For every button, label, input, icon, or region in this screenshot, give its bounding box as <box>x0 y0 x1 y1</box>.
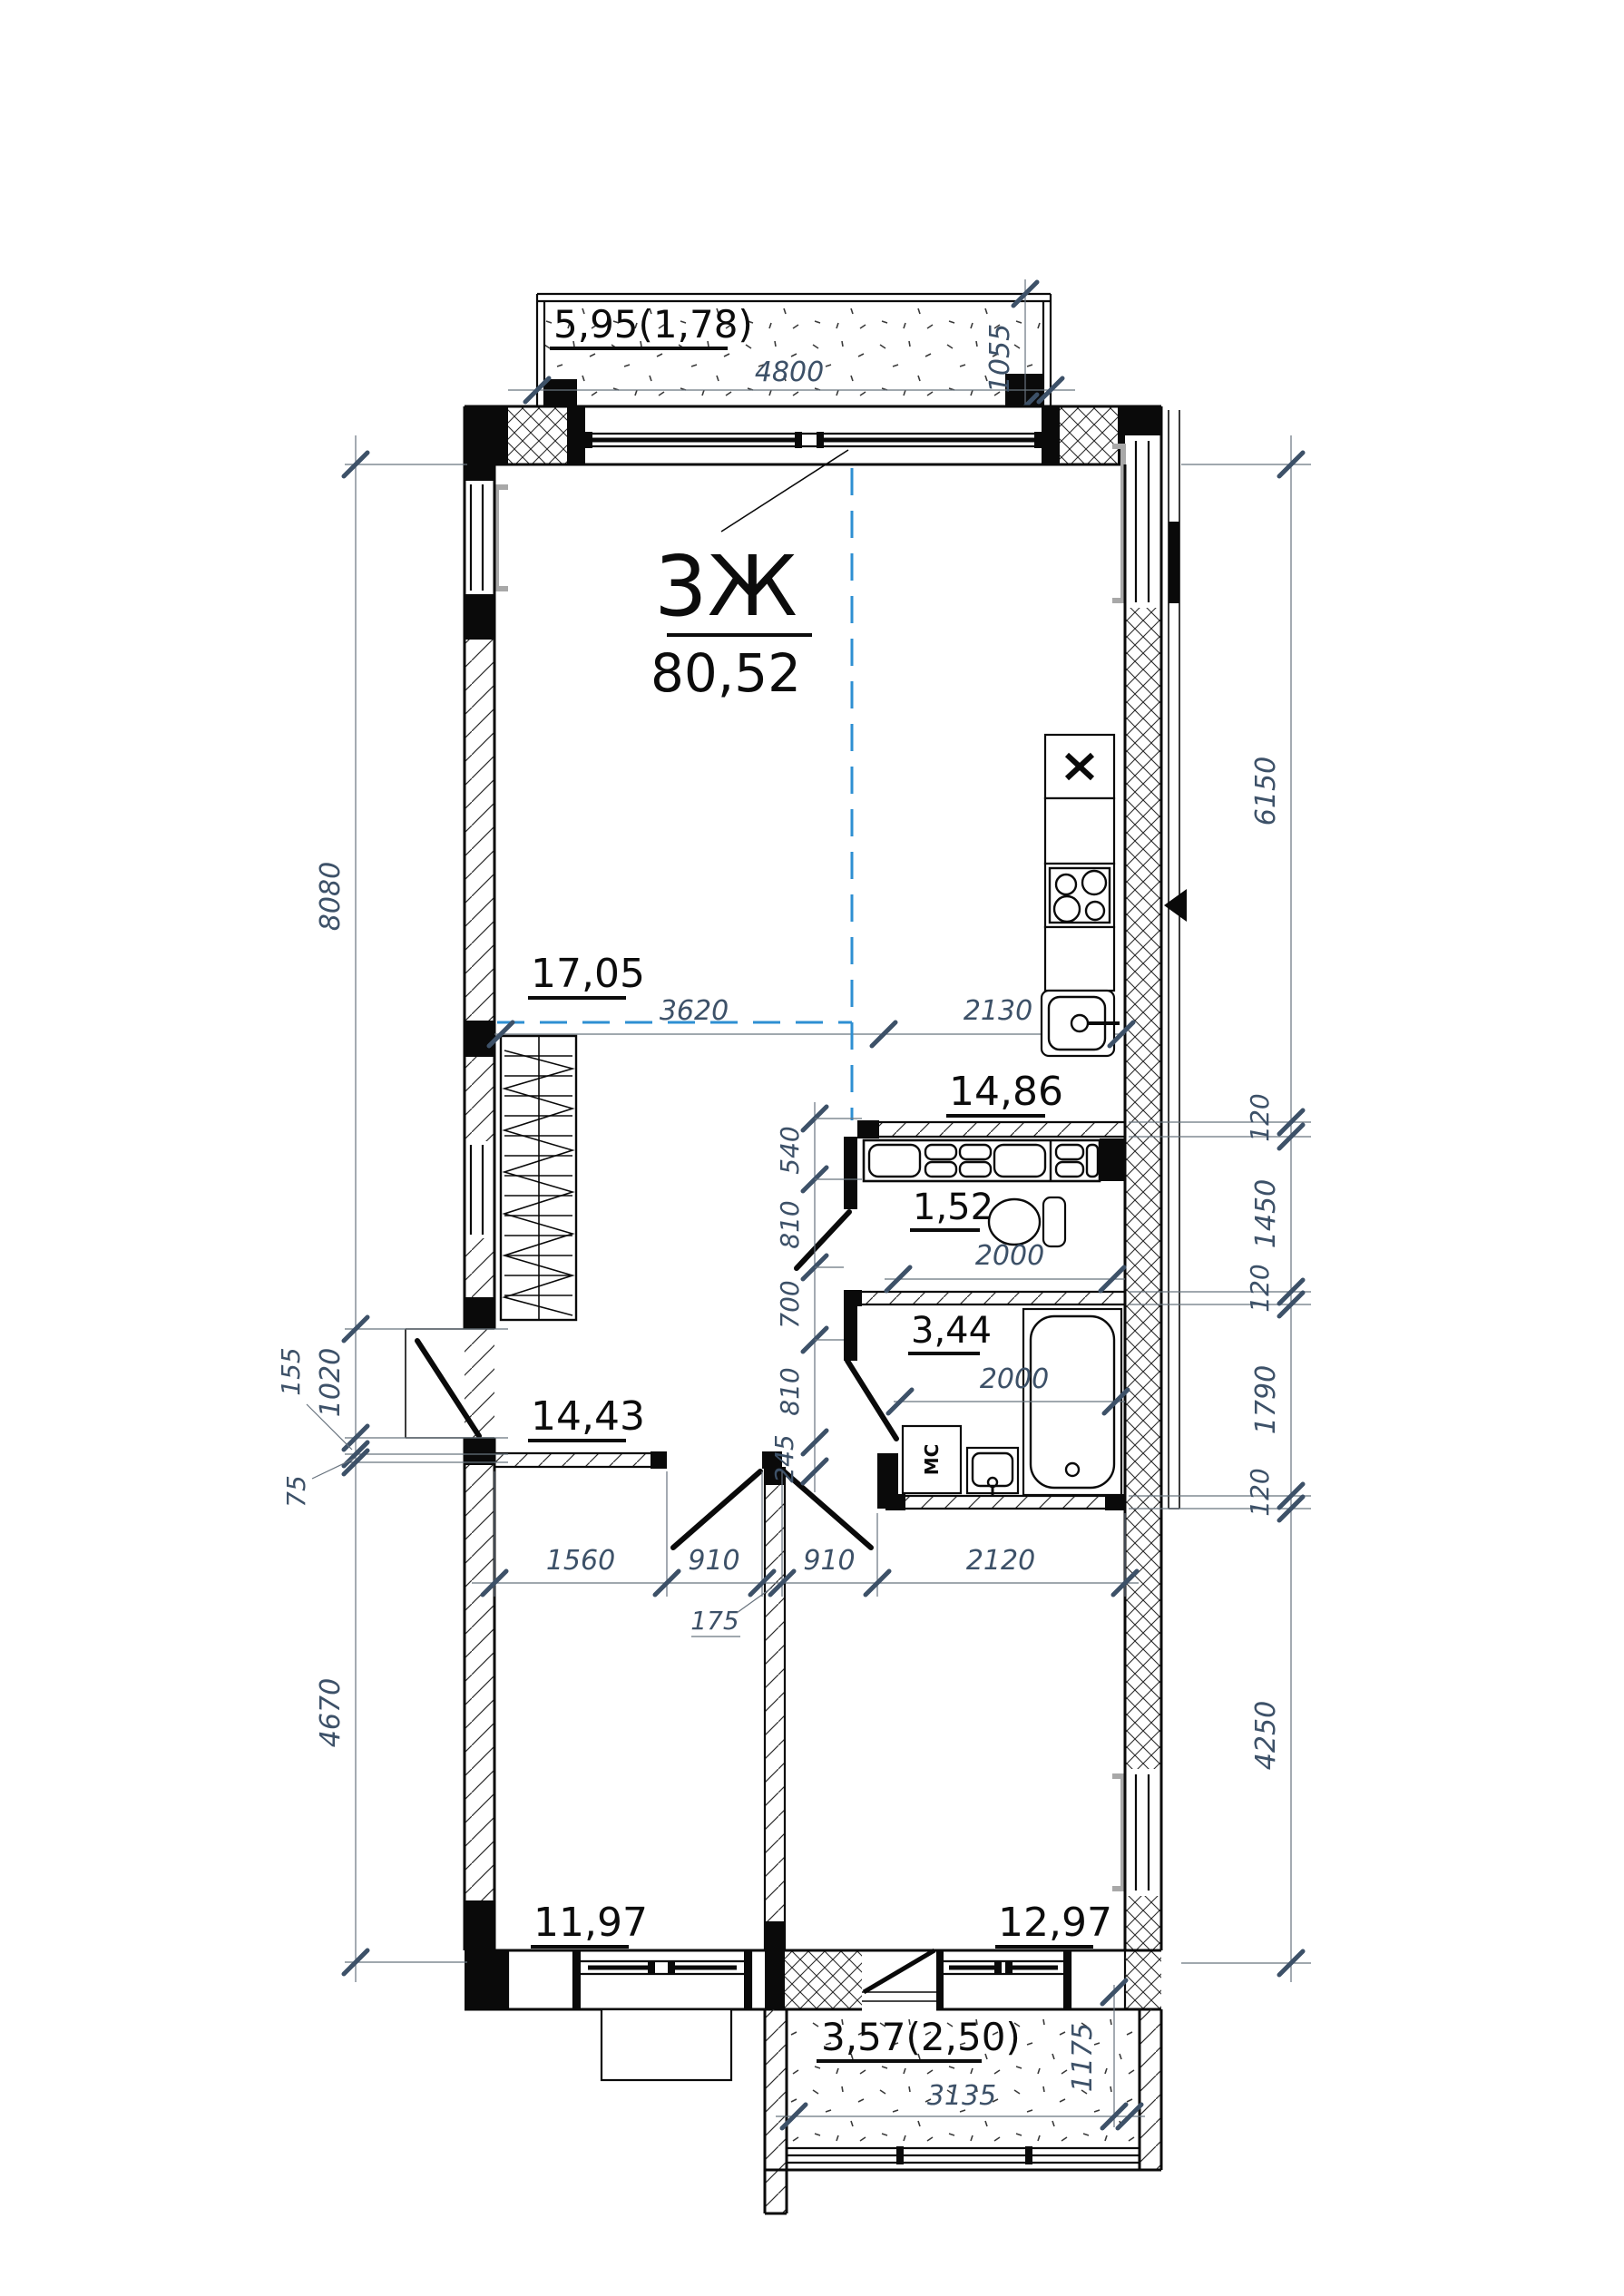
facade-marker <box>1164 889 1187 922</box>
dim-bottom-910b: 910 <box>803 1545 855 1577</box>
ac-basket <box>602 2009 731 2080</box>
dim-bath-2000: 2000 <box>980 1363 1049 1395</box>
stove <box>1045 864 1114 927</box>
dim-right-1450: 1450 <box>1250 1179 1282 1248</box>
dim-bottom-175: 175 <box>690 1606 739 1636</box>
dim-left-4670: 4670 <box>315 1678 347 1747</box>
dim-left-8080: 8080 <box>315 862 347 931</box>
facade-strip <box>1164 410 1187 1509</box>
bedroom-left-area: 11,97 <box>533 1900 648 1946</box>
dim-bottom-2120: 2120 <box>966 1545 1035 1577</box>
dim-interior-3620: 3620 <box>660 995 729 1027</box>
dim-right-120b: 120 <box>1245 1264 1275 1312</box>
wc-area: 1,52 <box>913 1187 993 1228</box>
unit-type-label: 3Ж <box>654 538 797 635</box>
bedroom-right-window <box>1112 1769 1161 1896</box>
dim-v-245: 245 <box>769 1434 799 1482</box>
kitchen-counter <box>1045 927 1114 991</box>
dim-balcony-bottom-width: 3135 <box>927 2080 996 2112</box>
kitchen-counter <box>1045 798 1114 864</box>
dim-bottom-1560: 1560 <box>546 1545 615 1577</box>
dim-balcony-bottom-depth: 1175 <box>1067 2023 1099 2092</box>
balcony-railing <box>765 2146 1161 2170</box>
wardrobe <box>501 1036 576 1320</box>
dim-right-4250: 4250 <box>1250 1701 1282 1770</box>
dim-right-6150: 6150 <box>1250 757 1282 826</box>
living-room-left-window <box>465 481 508 594</box>
dim-right-120c: 120 <box>1245 1468 1275 1516</box>
dim-v-810a: 810 <box>775 1200 805 1248</box>
total-area-label: 80,52 <box>651 642 801 704</box>
dim-left-75: 75 <box>281 1475 311 1508</box>
washing-machine: МС <box>903 1426 961 1493</box>
balcony-top-area-label: 5,95(1,78) <box>553 302 753 347</box>
living-room-area: 17,05 <box>531 951 645 997</box>
floor-plan-page: 5,95(1,78) 4800 1055 <box>0 0 1624 2296</box>
window-reveal-box <box>508 1950 573 2009</box>
toilet <box>989 1197 1065 1246</box>
vent-block <box>864 1138 1125 1181</box>
dim-v-810b: 810 <box>775 1367 805 1415</box>
bathroom-sink <box>967 1448 1018 1495</box>
balcony-bottom: 3,57(2,50) 3135 1175 <box>765 1980 1161 2213</box>
dim-left-155: 155 <box>276 1347 306 1395</box>
dim-balcony-top-depth: 1055 <box>984 324 1016 393</box>
living-room-top-window <box>585 432 1042 532</box>
dim-right-1790: 1790 <box>1250 1365 1282 1434</box>
dim-bottom-910a: 910 <box>688 1545 739 1577</box>
bedroom-left-door-leaf <box>673 1471 760 1548</box>
bathroom-area: 3,44 <box>911 1310 992 1352</box>
dim-v-700: 700 <box>775 1280 805 1328</box>
dim-right-120a: 120 <box>1245 1093 1275 1141</box>
floor-plan-drawing: 5,95(1,78) 4800 1055 <box>0 0 1624 2296</box>
hallway-area: 14,43 <box>531 1393 645 1440</box>
dim-left-1020: 1020 <box>315 1348 347 1417</box>
dim-balcony-top-width: 4800 <box>755 357 824 388</box>
window-reveal-box <box>1071 1950 1125 2009</box>
washing-machine-label: МС <box>921 1444 943 1476</box>
dim-wc-2000: 2000 <box>975 1240 1044 1272</box>
kitchen-units <box>1042 735 1120 1056</box>
left-wall-window-2 <box>465 1141 494 1238</box>
kitchen-area: 14,86 <box>949 1069 1063 1115</box>
bedroom-right-area: 12,97 <box>998 1900 1112 1946</box>
balcony-bottom-area-label: 3,57(2,50) <box>821 2015 1021 2059</box>
dim-interior-2130: 2130 <box>964 995 1032 1027</box>
dim-v-540: 540 <box>775 1126 805 1174</box>
bathroom-door-leaf <box>847 1361 896 1439</box>
